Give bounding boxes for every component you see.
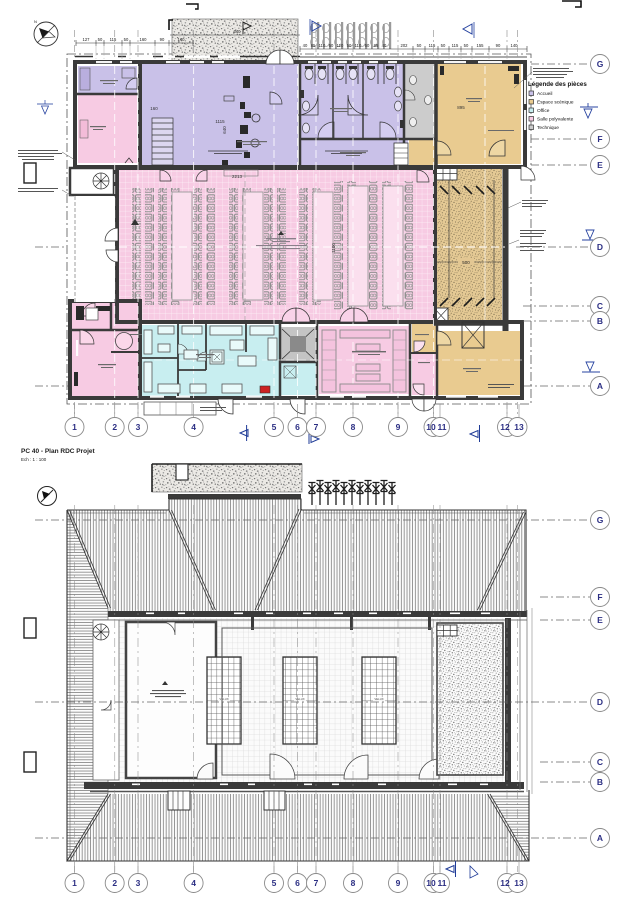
svg-text:13: 13 <box>514 422 524 432</box>
svg-text:Espace scénique: Espace scénique <box>537 100 574 106</box>
svg-text:Accueil: Accueil <box>537 91 552 97</box>
svg-text:160: 160 <box>150 106 158 111</box>
svg-text:F: F <box>597 134 602 144</box>
svg-text:85: 85 <box>311 43 316 48</box>
svg-text:2213: 2213 <box>232 174 243 179</box>
svg-text:E: E <box>597 615 603 625</box>
svg-text:50: 50 <box>365 43 370 48</box>
svg-text:40: 40 <box>303 43 308 48</box>
svg-text:640: 640 <box>234 29 242 34</box>
svg-text:8: 8 <box>351 878 356 888</box>
svg-text:40: 40 <box>382 43 387 48</box>
svg-text:110: 110 <box>319 43 326 48</box>
svg-text:N: N <box>34 19 37 24</box>
svg-text:F: F <box>597 592 602 602</box>
svg-text:160: 160 <box>140 37 148 42</box>
svg-text:C: C <box>597 301 603 311</box>
svg-text:G: G <box>597 59 604 69</box>
svg-text:5: 5 <box>272 878 277 888</box>
svg-text:50: 50 <box>124 37 129 42</box>
svg-text:1100: 1100 <box>331 243 336 253</box>
svg-text:90: 90 <box>496 43 501 48</box>
svg-text:1: 1 <box>72 422 77 432</box>
svg-text:50: 50 <box>329 43 334 48</box>
svg-text:140: 140 <box>178 37 186 42</box>
svg-text:1115: 1115 <box>215 119 225 124</box>
svg-text:6: 6 <box>295 878 300 888</box>
svg-text:3: 3 <box>136 878 141 888</box>
svg-text:115: 115 <box>452 43 459 48</box>
svg-text:Office: Office <box>537 108 550 114</box>
svg-text:115: 115 <box>110 37 117 42</box>
svg-text:11: 11 <box>438 878 447 888</box>
svg-text:A: A <box>597 381 603 391</box>
svg-text:Légende des pièces: Légende des pièces <box>528 81 587 88</box>
svg-text:500: 500 <box>462 260 470 265</box>
svg-text:110: 110 <box>337 43 344 48</box>
svg-text:8: 8 <box>351 422 356 432</box>
svg-text:4: 4 <box>191 878 196 888</box>
svg-text:Technique: Technique <box>537 125 559 131</box>
svg-text:6: 6 <box>295 422 300 432</box>
svg-text:50: 50 <box>417 43 422 48</box>
svg-text:9: 9 <box>396 878 401 888</box>
svg-text:155: 155 <box>477 43 485 48</box>
svg-text:10: 10 <box>426 422 436 432</box>
svg-text:D: D <box>597 242 603 252</box>
svg-text:D: D <box>597 697 603 707</box>
svg-text:895: 895 <box>457 105 465 110</box>
svg-text:127: 127 <box>83 37 91 42</box>
svg-text:11: 11 <box>438 422 447 432</box>
svg-text:VELUX: VELUX <box>295 697 304 701</box>
svg-text:13: 13 <box>514 878 524 888</box>
svg-text:5: 5 <box>272 422 277 432</box>
svg-text:VELUX: VELUX <box>219 697 228 701</box>
svg-text:C: C <box>597 757 603 767</box>
svg-text:E: E <box>597 160 603 170</box>
svg-text:640: 640 <box>222 126 227 134</box>
svg-text:B: B <box>597 777 603 787</box>
svg-text:PC 40 - Plan RDC Projet: PC 40 - Plan RDC Projet <box>21 448 96 455</box>
svg-text:12: 12 <box>500 422 510 432</box>
svg-text:7: 7 <box>314 422 319 432</box>
svg-text:7: 7 <box>314 878 319 888</box>
svg-text:9: 9 <box>396 422 401 432</box>
svg-text:Ech : 1 : 100: Ech : 1 : 100 <box>21 457 47 462</box>
svg-text:2: 2 <box>112 422 117 432</box>
svg-text:140: 140 <box>511 43 519 48</box>
svg-text:Salle polyvalente: Salle polyvalente <box>537 117 574 123</box>
svg-text:12: 12 <box>500 878 510 888</box>
svg-text:85: 85 <box>374 43 379 48</box>
svg-text:50: 50 <box>441 43 446 48</box>
svg-text:2: 2 <box>112 878 117 888</box>
svg-text:110: 110 <box>355 43 362 48</box>
svg-text:4: 4 <box>191 422 196 432</box>
svg-text:VELUX: VELUX <box>374 697 383 701</box>
svg-text:A: A <box>597 833 603 843</box>
svg-text:50: 50 <box>464 43 469 48</box>
svg-text:10: 10 <box>426 878 436 888</box>
svg-text:G: G <box>597 515 604 525</box>
svg-text:3: 3 <box>136 422 141 432</box>
svg-text:1: 1 <box>72 878 77 888</box>
svg-text:50: 50 <box>347 43 352 48</box>
svg-text:202: 202 <box>401 43 409 48</box>
svg-text:90: 90 <box>160 37 165 42</box>
svg-text:50: 50 <box>98 37 103 42</box>
svg-text:B: B <box>597 316 603 326</box>
svg-text:115: 115 <box>429 43 436 48</box>
